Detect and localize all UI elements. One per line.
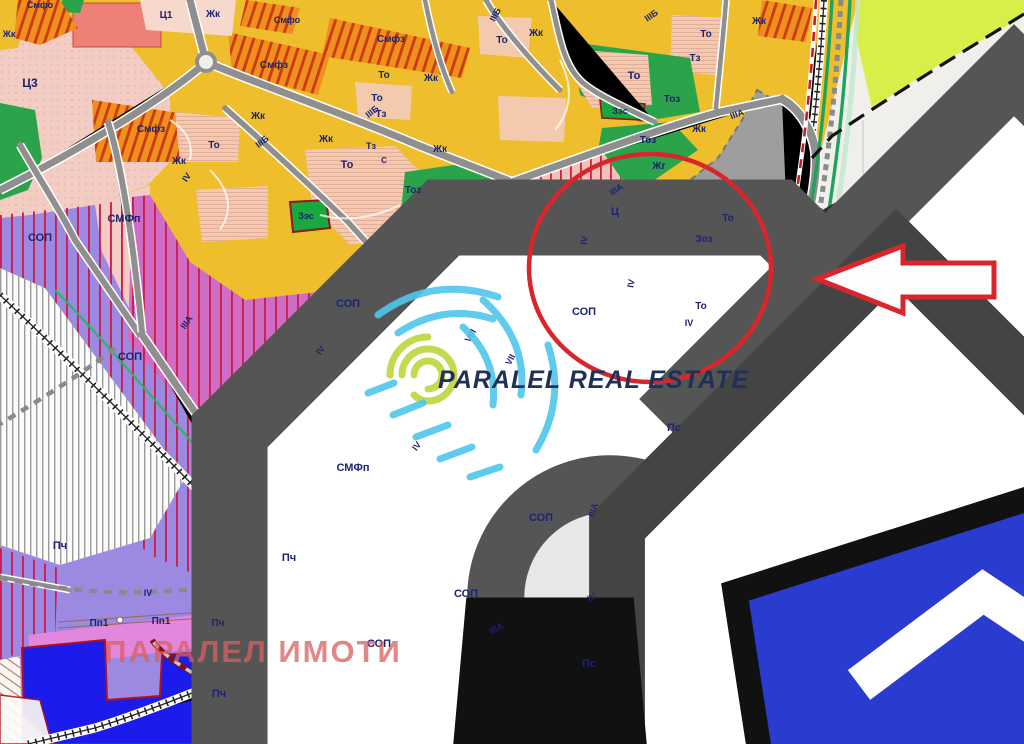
zone-label: Ц bbox=[611, 206, 619, 218]
zone-label: Зэс bbox=[298, 211, 314, 221]
zone-label: Тз bbox=[689, 53, 700, 64]
zone-label: Жк bbox=[751, 16, 767, 27]
zone-label: СОП bbox=[336, 298, 360, 310]
zone-label: Жк bbox=[423, 73, 439, 84]
zone-label: Жк bbox=[432, 144, 448, 155]
zone-label: Смфз bbox=[377, 33, 405, 45]
zone-label: Тоз bbox=[405, 185, 421, 196]
zone-label: Пч bbox=[282, 552, 296, 564]
zone-label: С bbox=[381, 156, 387, 165]
zone-label: То bbox=[700, 29, 712, 40]
road-label: IV bbox=[685, 318, 694, 328]
zone-label: Тоз bbox=[640, 135, 656, 146]
zone-label: Тз bbox=[366, 141, 376, 151]
zone-label: То bbox=[722, 213, 734, 224]
roundabout bbox=[197, 53, 215, 71]
zone-label: Жк bbox=[171, 156, 187, 167]
zone-label: Пс bbox=[582, 658, 596, 670]
zone-label: То bbox=[496, 35, 508, 46]
zone-label: Пс bbox=[667, 422, 681, 434]
zone-label: Жк bbox=[318, 134, 334, 145]
zone-label: Тоз bbox=[664, 94, 680, 105]
watermark-brand-text: PARALEL REAL ESTATE bbox=[438, 366, 749, 394]
zone-label: СМФп bbox=[108, 213, 141, 225]
zone-label: Пч bbox=[212, 688, 226, 700]
zone-label: Пп1 bbox=[90, 618, 109, 629]
zone-label: То bbox=[378, 70, 390, 81]
road-label: IV bbox=[144, 588, 153, 598]
zone-label: Жг bbox=[651, 161, 665, 172]
zone-label: Пч bbox=[212, 618, 225, 629]
zone-label: Смфо bbox=[274, 15, 301, 25]
zone-label: Зэс bbox=[612, 106, 628, 116]
zone-label: То bbox=[341, 159, 354, 171]
watermark-brand-cyrillic: ПАРАЛЕЛ ИМОТИ bbox=[104, 634, 402, 669]
zone-label: Пп1 bbox=[152, 616, 171, 627]
zone-label: Зоз bbox=[695, 234, 712, 245]
zone-label: Ц1 bbox=[160, 10, 173, 21]
zone-label: То bbox=[628, 70, 641, 82]
zone-label: Смфз bbox=[260, 59, 288, 71]
zone-label: СОП bbox=[572, 306, 596, 318]
zoning-map: СмфоЦ1ЖкСмфоЖкСмфзЦ3СмфзТоЖкТоТзЖкТоЖкТо… bbox=[0, 0, 1024, 744]
zone-label: СМФп bbox=[337, 462, 370, 474]
zone-label: То bbox=[208, 140, 220, 151]
zone-label: Жк bbox=[528, 28, 544, 39]
zoning-map-screenshot: СмфоЦ1ЖкСмфоЖкСмфзЦ3СмфзТоЖкТоТзЖкТоЖкТо… bbox=[0, 0, 1024, 744]
zone-label: Смфо bbox=[27, 0, 54, 10]
zone-label: СОП bbox=[118, 351, 142, 363]
zone-label: То bbox=[695, 301, 707, 312]
zone-label: Смфз bbox=[137, 123, 165, 135]
road-label: IV bbox=[578, 235, 589, 245]
zone-label: Жк bbox=[691, 124, 707, 135]
zone-label: Ц3 bbox=[22, 76, 38, 90]
zone-label: СОП bbox=[529, 512, 553, 524]
zone-label: Жк bbox=[250, 111, 266, 122]
zone-label: СОП bbox=[28, 232, 52, 244]
zone-label: То bbox=[371, 93, 383, 104]
zone-label: Пч bbox=[53, 540, 67, 552]
zone-label: Жк bbox=[205, 9, 221, 20]
zone-label: Жк bbox=[2, 29, 16, 39]
road-label: IV bbox=[625, 278, 636, 288]
zone-label: СОП bbox=[454, 588, 478, 600]
